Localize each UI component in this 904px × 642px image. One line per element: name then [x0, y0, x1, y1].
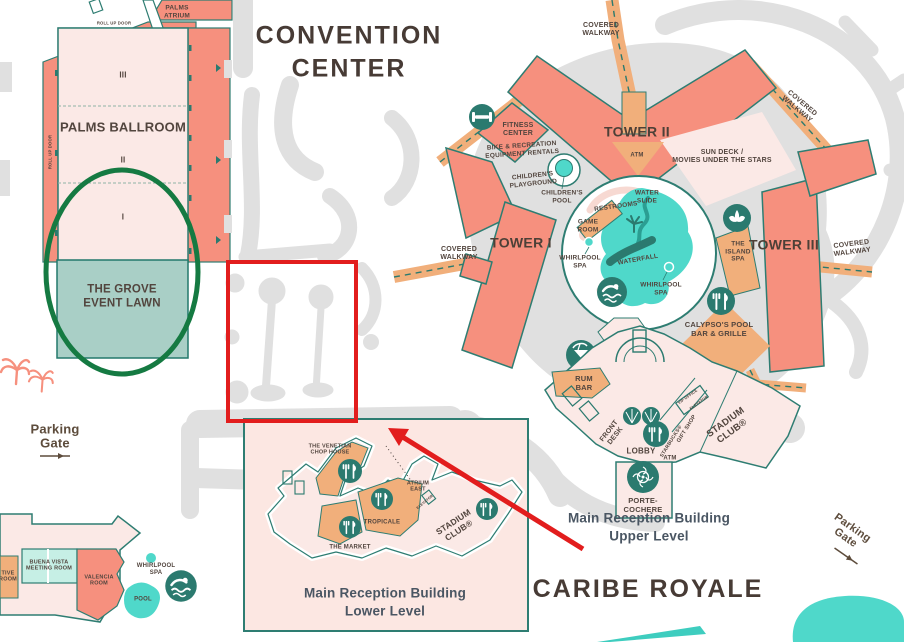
whirlpool-dot-south	[146, 553, 156, 563]
rum-bar-label: RUM BAR	[575, 375, 593, 393]
swimmer-icon-pool	[597, 277, 627, 307]
whirlpool-spa-right-label: WHIRLPOOL SPA	[640, 281, 682, 296]
water-slide-label: WATER SLIDE	[635, 189, 659, 204]
calypsos-dining-icon	[707, 287, 735, 315]
atm-lobby-label: ATM	[663, 455, 676, 462]
section-2-label: II	[121, 155, 126, 164]
map-canvas	[0, 0, 904, 642]
whirlpool-spa-left-label: WHIRLPOOL SPA	[559, 254, 601, 269]
buena-vista-label: BUENA VISTA MEETING ROOM	[26, 560, 72, 573]
parking-gate-left-label: Parking Gate	[30, 423, 79, 452]
whirlpool-dot-left	[585, 238, 594, 247]
palms-ballroom-label: PALMS BALLROOM	[60, 119, 186, 134]
pool-south-label: POOL	[134, 596, 152, 603]
section-1-label: I	[122, 212, 124, 221]
whirlpool-spa-south-label: WHIRLPOOL SPA	[137, 563, 175, 577]
venetian-dining-icon	[338, 459, 362, 483]
stadium-dining-icon	[476, 498, 498, 520]
island-spa-label: THE ISLAND SPA	[725, 241, 750, 264]
cul-de-sac-roads	[225, 274, 333, 403]
clipped-room-label: TIVE ROOM	[0, 571, 17, 584]
valencia-label: VALENCIA ROOM	[84, 575, 113, 588]
tower-3-building	[762, 178, 824, 372]
market-dining-icon	[339, 516, 361, 538]
palms-atrium-label: PALMS ATRIUM	[164, 4, 190, 19]
whirlpool-dot-right	[665, 263, 674, 272]
market-label: THE MARKET	[329, 544, 370, 551]
roll-up-door-top-label: ROLL UP DOOR	[97, 22, 131, 27]
lobby-label: LOBBY	[627, 446, 656, 455]
tropicale-label: TROPICALE	[364, 519, 400, 526]
atm-tower2-label: ATM	[630, 152, 643, 159]
childrens-pool-label: CHILDREN'S POOL	[541, 189, 582, 204]
tower-2-label: TOWER II	[604, 124, 670, 141]
tropicale-dining-icon	[371, 488, 393, 510]
fitness-center-label: FITNESS CENTER	[503, 122, 534, 139]
game-room-label: GAME ROOM	[577, 218, 598, 233]
convention-center-title: CONVENTION CENTER	[256, 20, 443, 85]
palms-ballroom-building	[58, 28, 188, 262]
atrium-east-label: ATRIUM EAST	[407, 481, 429, 494]
porte-cochere-icon	[627, 461, 659, 493]
covered-walkway-left-label: COVERED WALKWAY	[440, 246, 477, 263]
fitness-icon	[469, 104, 495, 130]
tower-3-label: TOWER III	[749, 237, 819, 254]
roll-up-door-left-label: ROLL UP DOOR	[49, 135, 54, 169]
lower-level-caption: Main Reception Building Lower Level	[304, 584, 466, 619]
section-3-label: III	[119, 70, 126, 79]
upper-level-caption: Main Reception Building Upper Level	[568, 509, 730, 544]
parking-arrow-left	[40, 453, 70, 459]
resort-map: CONVENTION CENTER CARIBE ROYALE PALMS AT…	[0, 0, 904, 642]
covered-walkway-top-label: COVERED WALKWAY	[582, 22, 619, 39]
caribe-royale-title: CARIBE ROYALE	[533, 573, 764, 606]
sun-deck-label: SUN DECK / MOVIES UNDER THE STARS	[672, 149, 772, 166]
island-spa-icon	[723, 204, 751, 232]
venetian-label: THE VENETIAN CHOP HOUSE	[309, 444, 352, 457]
tower-1-label: TOWER I	[490, 235, 552, 252]
grove-event-lawn-label: THE GROVE EVENT LAWN	[83, 283, 160, 310]
palm-trees-icon	[1, 359, 53, 391]
calypsos-label: CALYPSO'S POOL BAR & GRILLE	[685, 321, 754, 339]
